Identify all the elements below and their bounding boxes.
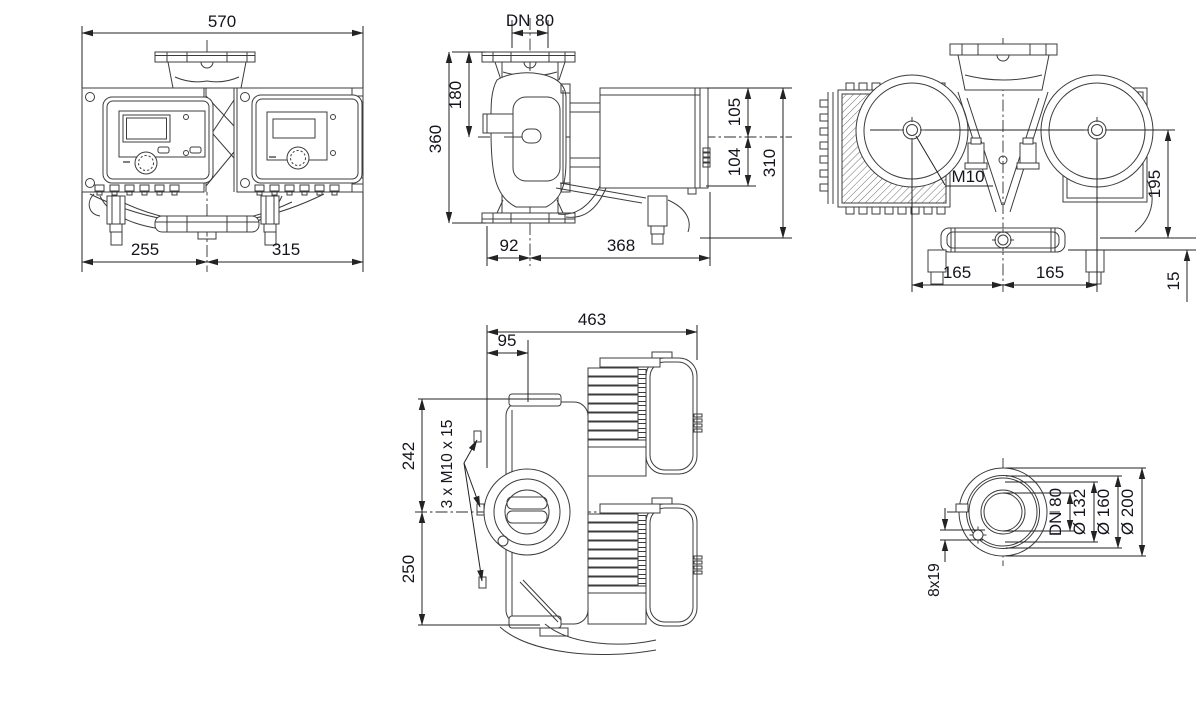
dim-165-left-label: 165: [943, 263, 971, 282]
dim-dn80-side-label: DN 80: [506, 11, 554, 30]
dim-195-label: 195: [1145, 170, 1164, 198]
motor-module-lower: [588, 498, 702, 626]
cable-bottom: [500, 627, 656, 655]
motor-module-upper: [588, 352, 702, 476]
bolt-note-label: 3 x M10 x 15: [439, 420, 456, 509]
pump-volute-side: [483, 73, 566, 207]
rear-side-view: 463 95 242 250 3 x M10 x 15: [399, 310, 702, 655]
side-view: DN 80 360 180 105 104 310 92 368: [426, 11, 792, 266]
vent-plugs: [965, 138, 1039, 169]
dim-200-label: Ø 200: [1118, 489, 1137, 535]
dim-310-label: 310: [760, 149, 779, 177]
suction-flange-top: [155, 52, 255, 88]
dim-dn80-flange-label: DN 80: [1046, 488, 1065, 536]
dim-15-label: 15: [1164, 272, 1183, 291]
front-view: 570 255 315: [82, 12, 363, 272]
dim-92-label: 92: [500, 236, 519, 255]
flange-face-rear: [484, 469, 570, 555]
dim-104-label: 104: [725, 148, 744, 176]
valve-under-motor: [648, 196, 667, 244]
dim-250-label: 250: [399, 555, 418, 583]
dim-255-label: 255: [131, 240, 159, 259]
dim-360-label: 360: [426, 125, 445, 153]
valve-right: [261, 196, 279, 245]
bolt-m10-label: M10: [951, 167, 984, 186]
dim-570-label: 570: [208, 12, 236, 31]
dim-132-label: Ø 132: [1070, 489, 1089, 535]
dim-160-label: Ø 160: [1094, 489, 1113, 535]
motor-clamp: [561, 84, 600, 192]
suction-port-top: [950, 44, 1057, 90]
discharge-flange-top-view: [941, 228, 1065, 252]
dim-368-label: 368: [607, 236, 635, 255]
dim-180-label: 180: [446, 81, 465, 109]
flange-detail-view: Ø 200 Ø 160 Ø 132 DN 80 8x19: [926, 458, 1146, 597]
control-module-right: [252, 95, 362, 183]
control-module-left: [103, 97, 213, 183]
dim-95-label: 95: [498, 331, 517, 350]
vent-tab: [956, 504, 968, 512]
dim-105-label: 105: [725, 98, 744, 126]
dim-315-label: 315: [272, 240, 300, 259]
top-view: M10 195 15 165 165: [820, 38, 1196, 302]
dim-463-label: 463: [578, 310, 606, 329]
dim-8x19-label: 8x19: [926, 563, 943, 597]
pump-dimensional-drawing: 570 255 315: [0, 0, 1200, 715]
motor-module-side: [600, 88, 710, 194]
valve-left: [107, 196, 125, 245]
dim-165-right-label: 165: [1036, 263, 1064, 282]
flange-rings: [956, 468, 1047, 556]
fitting-right: [1086, 250, 1104, 284]
dim-242-label: 242: [399, 442, 418, 470]
technical-drawing-page: 570 255 315: [0, 0, 1200, 715]
